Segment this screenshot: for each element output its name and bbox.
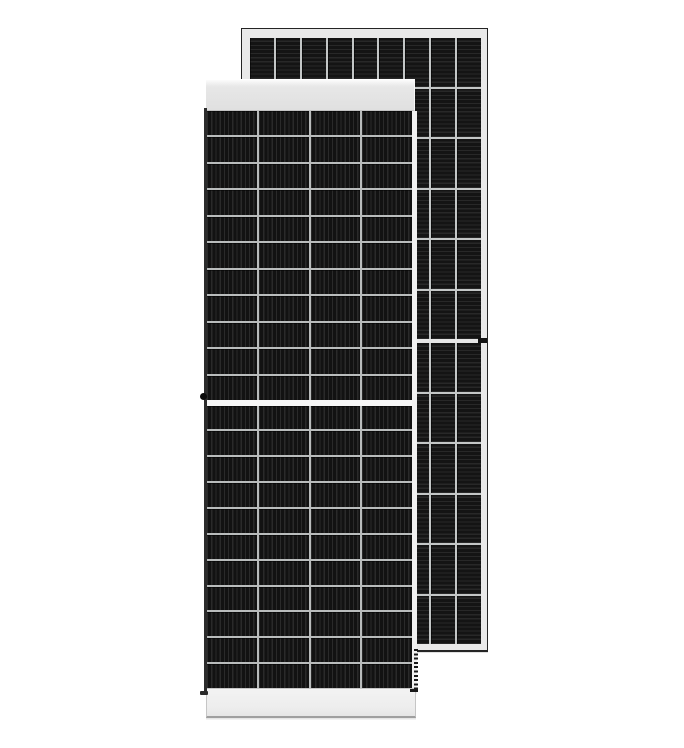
front-solar-cell [259, 164, 309, 188]
front-solar-cell [362, 243, 412, 267]
front-solar-cell [362, 270, 412, 294]
front-solar-cell [259, 535, 309, 559]
rear-solar-cell [457, 343, 481, 392]
product-photo-scene [0, 0, 684, 748]
front-solar-cell [207, 190, 257, 214]
front-solar-cell [362, 217, 412, 241]
front-solar-cell [362, 406, 412, 430]
front-left-corner-mark [200, 691, 208, 695]
front-solar-cell [207, 431, 257, 455]
front-solar-cell [259, 270, 309, 294]
front-solar-cell [207, 323, 257, 347]
front-solar-cell [259, 457, 309, 481]
front-solar-cell [207, 509, 257, 533]
rear-solar-cell [457, 139, 481, 188]
front-solar-cell [259, 483, 309, 507]
front-solar-cell [311, 111, 361, 135]
front-solar-cell [207, 137, 257, 161]
front-solar-cell [259, 349, 309, 373]
front-solar-cell [207, 535, 257, 559]
front-solar-cell [362, 164, 412, 188]
front-solar-cell [362, 376, 412, 400]
front-solar-cell [207, 457, 257, 481]
rear-solar-cell [457, 240, 481, 289]
rear-solar-cell [431, 139, 455, 188]
front-bottom-rail [206, 688, 416, 718]
front-solar-cell [259, 587, 309, 611]
front-solar-cell [311, 190, 361, 214]
front-solar-cell [362, 561, 412, 585]
front-solar-cell [207, 376, 257, 400]
front-solar-cell [259, 406, 309, 430]
rear-solar-cell [431, 545, 455, 594]
front-top-rail [206, 79, 415, 111]
front-cell-grid-top [207, 111, 412, 400]
front-solar-cell [259, 638, 309, 662]
rear-solar-cell [431, 190, 455, 239]
front-solar-cell [311, 164, 361, 188]
rear-solar-cell [431, 596, 455, 645]
rear-solar-cell [431, 38, 455, 87]
front-solar-cell [311, 535, 361, 559]
front-solar-cell [362, 349, 412, 373]
front-solar-cell [259, 664, 309, 688]
rear-solar-cell [431, 343, 455, 392]
front-solar-cell [311, 349, 361, 373]
grounding-dot [200, 393, 207, 400]
rear-solar-cell [431, 444, 455, 493]
front-cell-grid-bottom [207, 406, 412, 689]
rear-solar-cell [457, 190, 481, 239]
front-solar-cell [311, 137, 361, 161]
front-solar-cell [259, 561, 309, 585]
front-solar-cell [259, 217, 309, 241]
front-solar-cell [362, 111, 412, 135]
front-solar-cell [311, 243, 361, 267]
front-solar-cell [311, 638, 361, 662]
front-solar-cell [259, 431, 309, 455]
front-solar-cell [362, 509, 412, 533]
front-solar-cell [207, 612, 257, 636]
rear-solar-cell [457, 596, 481, 645]
front-solar-cell [311, 587, 361, 611]
front-solar-cell [259, 376, 309, 400]
front-solar-cell [259, 509, 309, 533]
front-solar-cell [207, 296, 257, 320]
front-solar-cell [311, 376, 361, 400]
rear-solar-cell [457, 38, 481, 87]
front-solar-cell [311, 561, 361, 585]
front-solar-cell [362, 483, 412, 507]
rear-solar-cell [431, 89, 455, 138]
front-solar-cell [207, 349, 257, 373]
front-solar-cell [311, 296, 361, 320]
front-left-frame-edge [204, 108, 207, 694]
front-solar-cell [259, 111, 309, 135]
front-solar-cell [259, 612, 309, 636]
rear-solar-cell [457, 444, 481, 493]
front-solar-cell [259, 296, 309, 320]
front-solar-cell [362, 664, 412, 688]
front-solar-cell [311, 509, 361, 533]
rear-solar-cell [457, 545, 481, 594]
front-solar-cell [362, 457, 412, 481]
front-solar-cell [207, 270, 257, 294]
rear-solar-cell [431, 291, 455, 340]
front-solar-cell [362, 587, 412, 611]
front-solar-cell [207, 483, 257, 507]
front-solar-cell [207, 243, 257, 267]
frame-edge-step [410, 689, 418, 692]
front-solar-cell [362, 190, 412, 214]
mounting-notch [478, 338, 487, 343]
front-solar-panel [202, 79, 418, 720]
rear-solar-cell [431, 394, 455, 443]
rear-solar-cell [431, 240, 455, 289]
front-solar-cell [311, 431, 361, 455]
front-solar-cell [311, 457, 361, 481]
front-solar-cell [311, 612, 361, 636]
front-solar-cell [259, 137, 309, 161]
front-solar-cell [311, 217, 361, 241]
front-solar-cell [311, 664, 361, 688]
front-solar-cell [362, 137, 412, 161]
rear-solar-cell [457, 89, 481, 138]
front-solar-cell [207, 406, 257, 430]
front-solar-cell [311, 406, 361, 430]
front-solar-cell [207, 164, 257, 188]
front-solar-cell [362, 638, 412, 662]
rear-solar-cell [457, 291, 481, 340]
front-solar-cell [207, 587, 257, 611]
front-solar-cell [259, 243, 309, 267]
front-solar-cell [311, 483, 361, 507]
front-solar-cell [311, 323, 361, 347]
front-solar-cell [362, 323, 412, 347]
front-solar-cell [259, 190, 309, 214]
front-solar-cell [207, 111, 257, 135]
frame-drain-dashes [414, 649, 418, 690]
front-solar-cell [207, 561, 257, 585]
rear-solar-cell [431, 495, 455, 544]
front-solar-cell [207, 638, 257, 662]
front-solar-cell [362, 535, 412, 559]
rear-solar-cell [457, 394, 481, 443]
front-solar-cell [207, 664, 257, 688]
front-solar-cell [362, 431, 412, 455]
front-solar-cell [362, 612, 412, 636]
front-solar-cell [311, 270, 361, 294]
front-cell-area [207, 111, 412, 688]
front-solar-cell [207, 217, 257, 241]
front-solar-cell [362, 296, 412, 320]
front-solar-cell [259, 323, 309, 347]
rear-solar-cell [457, 495, 481, 544]
